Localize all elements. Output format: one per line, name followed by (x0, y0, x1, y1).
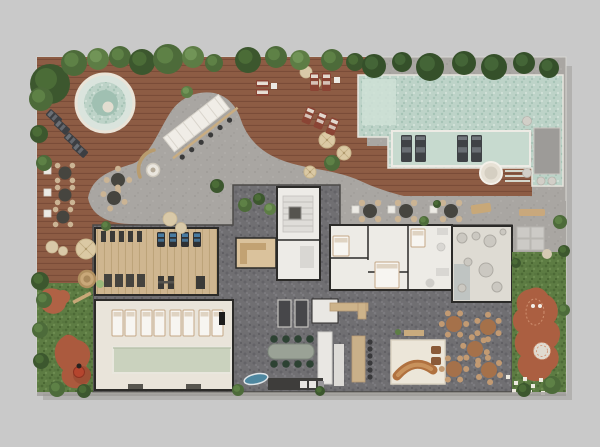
tree (362, 54, 386, 78)
lounger-cushion (416, 147, 425, 152)
tree (32, 322, 48, 338)
tree-highlight (545, 378, 555, 388)
tree-highlight (560, 305, 567, 312)
chair (411, 216, 417, 222)
chair (456, 200, 462, 206)
tree-highlight (132, 52, 146, 66)
tree-highlight (324, 51, 336, 63)
lounger-pillow (194, 234, 200, 238)
lounge-sofa (240, 243, 247, 264)
tree (481, 54, 507, 80)
lounger-pillow (416, 137, 425, 141)
lounger-pillow (158, 234, 164, 238)
tree-highlight (32, 89, 45, 102)
pantry-counter (358, 303, 366, 319)
lounger-pillow (472, 137, 481, 141)
stepping-stone (537, 177, 545, 185)
tree-highlight (293, 52, 304, 63)
bar-stool (367, 374, 372, 379)
tree (253, 193, 265, 205)
floor-plan-render (0, 0, 600, 447)
table-top (444, 204, 458, 218)
tree-highlight (35, 355, 44, 364)
table-top (59, 167, 72, 180)
gym-rack (101, 231, 106, 242)
tree (33, 353, 49, 369)
tree (558, 245, 570, 257)
tree-highlight (420, 56, 435, 71)
chair (126, 177, 132, 183)
sun-lounger-red (322, 73, 331, 91)
tree (517, 383, 531, 397)
table-top (399, 204, 413, 218)
spa-mat (186, 384, 201, 389)
tree-highlight (79, 385, 87, 393)
elevator (278, 300, 291, 327)
bar-stool (367, 353, 372, 358)
chair (485, 312, 491, 318)
dining-table (268, 344, 314, 359)
tree-highlight (185, 48, 197, 60)
stepping-stone (523, 117, 532, 126)
chair (487, 379, 493, 385)
spa-door (219, 312, 225, 325)
zen-rock (464, 258, 472, 266)
lawn-cube (514, 381, 518, 385)
play-structure-right (513, 287, 560, 381)
deck-umbrella (304, 166, 316, 178)
tree-highlight (519, 384, 527, 392)
sun-lounger-red (256, 80, 269, 87)
tree (265, 46, 287, 68)
lounger-pillow (402, 137, 411, 141)
chair (439, 366, 445, 372)
chair (53, 222, 59, 228)
chair (475, 362, 481, 368)
gym-ball (96, 280, 104, 288)
bed-pillow (201, 312, 209, 317)
tree (315, 386, 325, 396)
tree-highlight (38, 294, 47, 303)
massage-bed (183, 310, 194, 336)
lounger-cushion (170, 239, 176, 242)
tree-highlight (64, 53, 78, 67)
gym-treadmill (157, 232, 165, 247)
sun-lounger-red (310, 73, 319, 91)
tree (109, 46, 131, 68)
tree (392, 52, 412, 72)
spa-plunge-pool (113, 347, 231, 373)
tree (87, 48, 109, 70)
bar-stool (367, 367, 372, 372)
chair (440, 216, 446, 222)
tree (182, 46, 204, 68)
play-toy (531, 304, 535, 308)
pool-lounger (401, 135, 412, 162)
core-storage (300, 246, 314, 268)
massage-bed (154, 310, 165, 336)
zen-rock (457, 233, 467, 243)
tree (539, 58, 559, 78)
chair (55, 185, 61, 191)
elevator (295, 300, 308, 327)
lounger-pillow (323, 75, 330, 79)
chair (68, 207, 74, 213)
pouf (59, 247, 68, 256)
lounger-cushion (472, 147, 481, 152)
tree-highlight (555, 216, 563, 224)
tree-highlight (38, 157, 47, 166)
chair (104, 177, 110, 183)
outdoor-sofa-module (531, 227, 544, 238)
umbrella-pole (326, 139, 328, 141)
chair (70, 163, 76, 169)
gym-rack (137, 231, 142, 242)
tree-highlight (484, 57, 498, 71)
gym-cable-bar (158, 281, 174, 284)
tree (61, 50, 87, 76)
gym-treadmill (193, 232, 201, 247)
chair (68, 222, 74, 228)
bed-pillow (413, 231, 424, 236)
chair (375, 200, 381, 206)
gym-cable-machine (196, 276, 205, 289)
stepping-stone (548, 177, 556, 185)
tree (321, 49, 343, 71)
zen-rock (500, 229, 506, 235)
chair (70, 200, 76, 206)
bar-counter (352, 336, 365, 382)
chair (55, 178, 61, 184)
lounger-cushion (194, 239, 200, 242)
tree (324, 155, 340, 171)
tree-highlight (266, 204, 273, 211)
tree-highlight (112, 48, 124, 60)
tree (129, 49, 155, 75)
deck-side-table (44, 210, 51, 217)
chair (445, 377, 451, 383)
tree-highlight (316, 387, 322, 393)
bath-fixture (437, 228, 448, 235)
table-top (446, 361, 462, 377)
tree (210, 179, 224, 193)
dining-chair (270, 360, 278, 368)
chair (395, 216, 401, 222)
table-top (480, 319, 496, 335)
suite-bed (375, 262, 399, 288)
massage-bed (199, 310, 210, 336)
dining-chair (294, 360, 302, 368)
tree (153, 44, 183, 74)
gym-rack (110, 231, 115, 242)
spa-fountain (76, 74, 134, 132)
tree (31, 272, 49, 290)
hot-tub-inner (485, 167, 498, 180)
gym-bench (115, 274, 123, 287)
lounger-cushion (323, 81, 330, 85)
chair (411, 200, 417, 206)
tree-highlight (183, 87, 190, 94)
tree-highlight (32, 127, 42, 137)
bed-pillow (377, 264, 398, 269)
tree-highlight (157, 47, 174, 64)
chair (439, 321, 445, 327)
suite-bed (411, 229, 425, 247)
tree (416, 53, 444, 81)
lounger-cushion (458, 147, 467, 152)
chair (445, 310, 451, 316)
tree (433, 200, 441, 208)
lawn-cube (539, 378, 543, 382)
zen-rock (458, 284, 466, 292)
ring-inner (83, 275, 90, 282)
tree-highlight (90, 50, 102, 62)
tree (346, 53, 364, 71)
tree (290, 50, 310, 70)
chair (457, 377, 463, 383)
side-table-white (334, 77, 340, 83)
kitchen-counter (318, 332, 332, 384)
tree (36, 292, 52, 308)
deck-umbrella (337, 146, 351, 160)
tree-highlight (254, 194, 261, 201)
zen-rock (492, 282, 502, 292)
armchair (431, 357, 441, 365)
chair (395, 200, 401, 206)
pool-lounger (457, 135, 468, 162)
lounger-cushion (402, 147, 411, 152)
umbrella-pole (85, 248, 87, 250)
pool-steps (505, 180, 530, 182)
table-top (363, 204, 377, 218)
tree-highlight (268, 48, 280, 60)
parasol (76, 239, 96, 259)
tree (30, 125, 48, 143)
gym-bench (104, 274, 112, 287)
tree (235, 47, 261, 73)
outdoor-sofa-module (517, 227, 530, 238)
chair (463, 366, 469, 372)
lounger-cushion (182, 239, 188, 242)
bed-pillow (114, 312, 122, 317)
chair (457, 310, 463, 316)
dining-chair (270, 335, 278, 343)
chair (496, 318, 502, 324)
table-top (107, 191, 121, 205)
gym-rack (128, 231, 133, 242)
tree-highlight (212, 180, 220, 188)
dining-chair (306, 335, 314, 343)
tree (101, 221, 111, 231)
chair (359, 216, 365, 222)
tree-highlight (238, 50, 252, 64)
stair-skylight (289, 207, 301, 219)
tree (543, 376, 561, 394)
dining-chair (282, 335, 290, 343)
bed-pillow (335, 238, 348, 243)
tree-highlight (207, 56, 217, 66)
umbrella-pole (343, 152, 345, 154)
kitchen-appliance (300, 381, 307, 388)
chair (463, 355, 469, 361)
chair (460, 343, 466, 349)
table-top (59, 189, 72, 202)
massage-bed (141, 310, 152, 336)
tree-highlight (434, 201, 438, 205)
chair (115, 166, 121, 172)
tree-highlight (420, 217, 426, 223)
massage-bed (170, 310, 181, 336)
chair (496, 330, 502, 336)
chair (107, 206, 113, 212)
lounger-pillow (182, 234, 188, 238)
tree (181, 86, 193, 98)
tree-highlight (102, 222, 108, 228)
tree-highlight (33, 274, 43, 284)
chair (70, 185, 76, 191)
play-sand-circle (534, 343, 551, 360)
chair (445, 355, 451, 361)
gym-treadmill (169, 232, 177, 247)
chair (55, 200, 61, 206)
chair (496, 360, 502, 366)
lounger-pillow (458, 137, 467, 141)
bed-pillow (156, 312, 164, 317)
massage-bed (112, 310, 123, 336)
terrace-side-table (352, 206, 359, 213)
tree (49, 381, 65, 397)
tree (553, 215, 567, 229)
chair (100, 191, 106, 197)
terrace-side-table (388, 206, 395, 213)
bar-stool (367, 360, 372, 365)
deck-side-table (44, 189, 51, 196)
chair (359, 200, 365, 206)
tree-highlight (542, 60, 553, 71)
pouf (176, 223, 187, 234)
bed-pillow (185, 312, 193, 317)
chair (485, 355, 491, 361)
lounger-cushion (158, 239, 164, 242)
zen-rock (472, 232, 480, 240)
outdoor-sofa-module (531, 239, 544, 250)
tree-highlight (348, 55, 358, 65)
dining-chair (306, 360, 314, 368)
tree-highlight (35, 68, 57, 90)
tree (419, 216, 429, 226)
firepit-bowl (151, 168, 156, 173)
tree-highlight (512, 259, 518, 265)
chair (476, 374, 482, 380)
table-top (446, 316, 462, 332)
plan-bottom-shadow (37, 392, 566, 396)
tree (29, 87, 53, 111)
lounger-cushion (257, 83, 268, 84)
chair (53, 207, 59, 213)
lounger-cushion (257, 92, 268, 93)
lounger-cushion (311, 81, 318, 85)
bed-pillow (143, 312, 151, 317)
chair (484, 349, 490, 355)
chair (463, 321, 469, 327)
tree-highlight (395, 54, 406, 65)
tree (452, 51, 476, 75)
ladybug-head (77, 364, 82, 369)
fire-pit (147, 164, 160, 177)
wood-bench-right (519, 209, 545, 216)
chair (474, 318, 480, 324)
tree (264, 203, 276, 215)
chair (115, 184, 121, 190)
bath-basin (437, 243, 445, 251)
pouf (46, 241, 58, 253)
suite-bed (333, 236, 349, 256)
chair (55, 163, 61, 169)
tree (558, 304, 570, 316)
chair (456, 216, 462, 222)
tree-highlight (516, 54, 528, 66)
zen-rock (479, 263, 493, 277)
chair (497, 372, 503, 378)
dining-chair (294, 335, 302, 343)
chair (481, 337, 487, 343)
gym-bench (137, 274, 145, 287)
table-top (481, 362, 497, 378)
gym-bench (126, 274, 134, 287)
pool-lounger (471, 135, 482, 162)
stepping-stone (523, 169, 532, 178)
fountain-center (103, 102, 114, 113)
chair (122, 199, 128, 205)
pool-tanning-shelf (362, 79, 396, 125)
bed-pillow (127, 312, 135, 317)
zen-rock (484, 235, 496, 247)
kitchen-island (334, 344, 344, 386)
spa-mat (128, 384, 143, 389)
tree-highlight (34, 324, 43, 333)
armchair (431, 346, 441, 354)
outdoor-pouf (542, 249, 552, 259)
pouf (163, 212, 177, 226)
bed-pillow (172, 312, 180, 317)
dining-chair (282, 360, 290, 368)
pool-lounger (415, 135, 426, 162)
table-top (57, 211, 70, 224)
umbrella-pole (309, 171, 311, 173)
chair (469, 334, 475, 340)
lounger-pillow (311, 75, 318, 79)
kitchen-appliance (309, 381, 316, 388)
chair (474, 330, 480, 336)
tree-highlight (365, 56, 378, 69)
tree-highlight (455, 53, 468, 66)
tree-highlight (234, 385, 241, 392)
play-mound-bump (56, 290, 70, 304)
play-toy (538, 304, 542, 308)
bar-stool (367, 339, 372, 344)
hanging-chair (79, 271, 95, 287)
gym-treadmill (181, 232, 189, 247)
tree (513, 52, 535, 74)
lawn-cube (531, 384, 535, 388)
console-table (404, 330, 424, 336)
bath-fixture (436, 268, 449, 276)
bath-tub (426, 279, 435, 288)
tree-highlight (51, 383, 60, 392)
lawn-cube (506, 375, 510, 379)
lounger-pillow (170, 234, 176, 238)
chair (445, 332, 451, 338)
